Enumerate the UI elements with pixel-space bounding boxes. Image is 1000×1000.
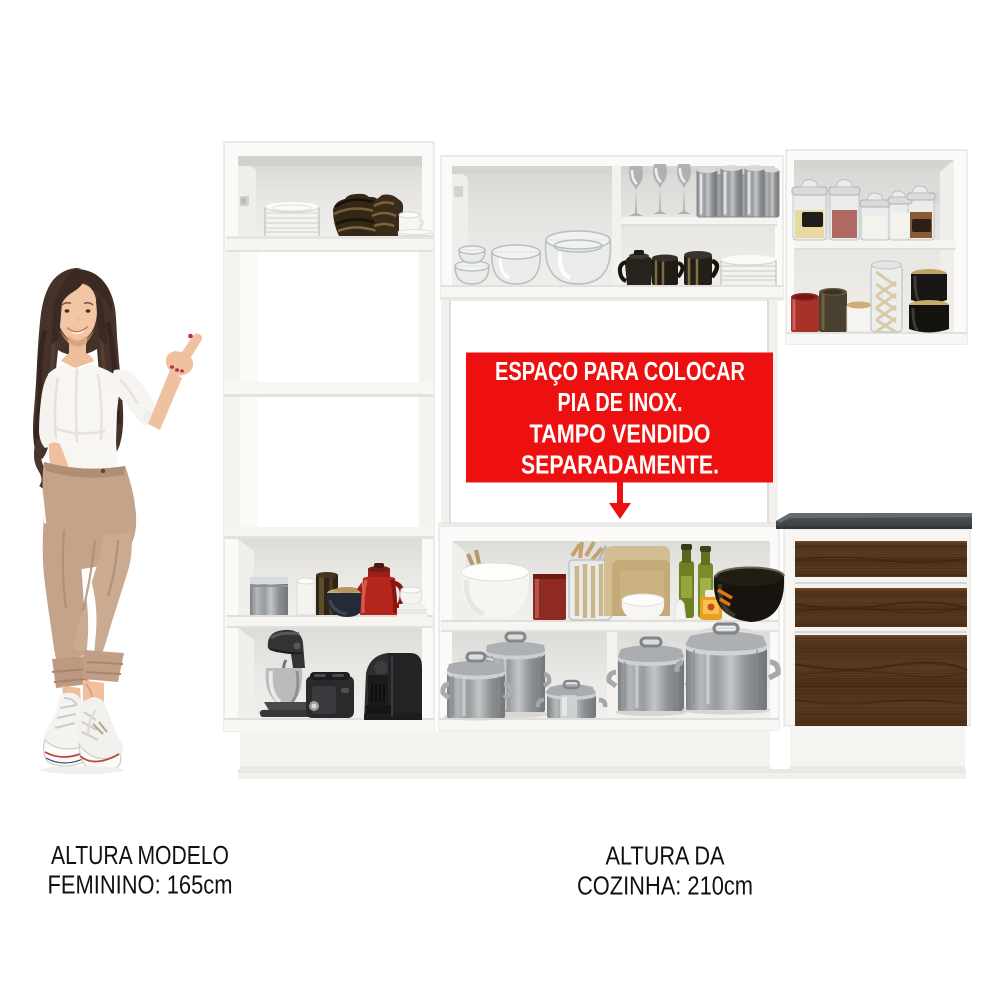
svg-text:FEMININO: 165cm: FEMININO: 165cm	[48, 872, 233, 900]
svg-text:ALTURA MODELO: ALTURA MODELO	[51, 842, 229, 870]
svg-text:ESPAÇO PARA COLOCAR: ESPAÇO PARA COLOCAR	[495, 358, 745, 386]
svg-text:COZINHA: 210cm: COZINHA: 210cm	[577, 873, 753, 901]
svg-text:SEPARADAMENTE.: SEPARADAMENTE.	[521, 452, 719, 480]
svg-text:ALTURA DA: ALTURA DA	[606, 843, 725, 871]
svg-text:PIA DE INOX.: PIA DE INOX.	[558, 389, 683, 417]
svg-text:TAMPO VENDIDO: TAMPO VENDIDO	[530, 421, 711, 449]
